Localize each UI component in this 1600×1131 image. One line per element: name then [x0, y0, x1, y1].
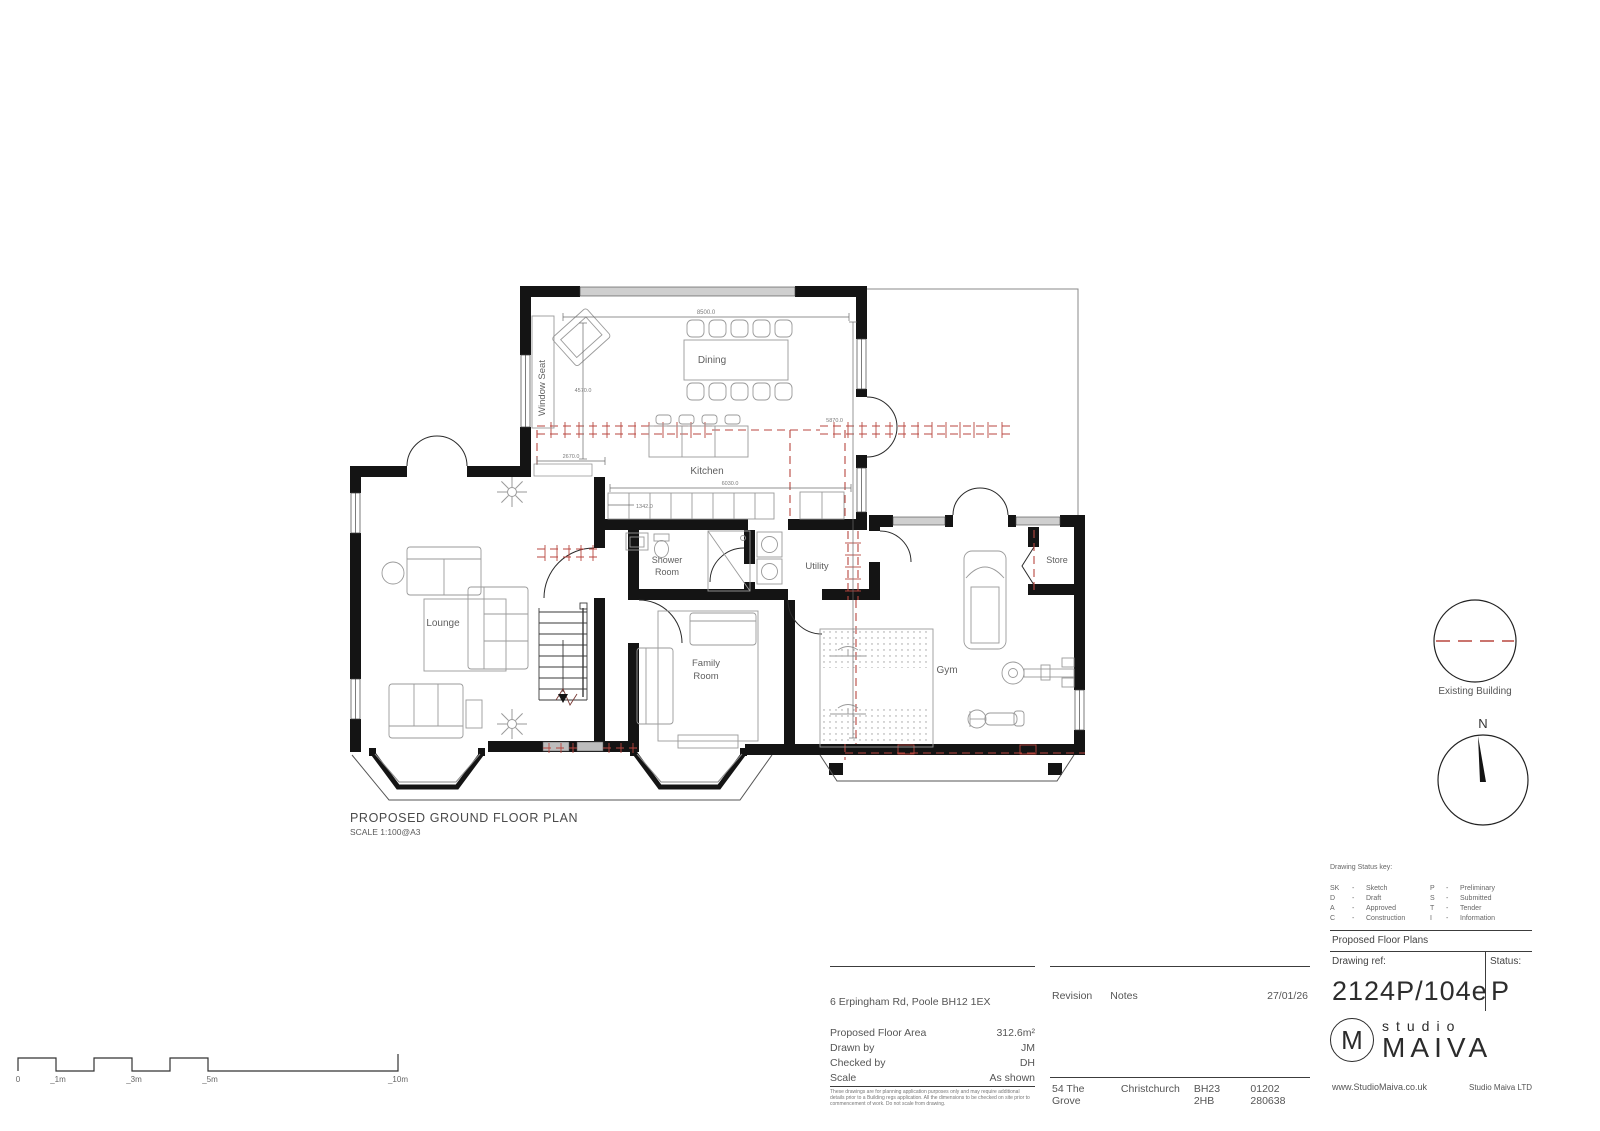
key-dash: - [1446, 884, 1460, 894]
room-label-utility: Utility [805, 561, 828, 572]
plan-scale-note: SCALE 1:100@A3 [350, 827, 578, 837]
scale-bar: 0 _1m _3m _5m _10m [16, 1054, 409, 1084]
key-dash: - [1446, 904, 1460, 914]
info-row-floor-area: Proposed Floor Area 312.6m² [830, 1026, 1035, 1041]
key-code: A [1330, 904, 1352, 914]
room-label-lounge: Lounge [426, 618, 460, 629]
disclaimer-text: These drawings are for planning applicat… [830, 1089, 1035, 1107]
plan-title: PROPOSED GROUND FLOOR PLAN [350, 811, 578, 825]
key-dash: - [1352, 914, 1366, 924]
existing-building-legend: Existing Building [1434, 600, 1516, 697]
key-label: Sketch [1366, 884, 1430, 894]
key-code: C [1330, 914, 1352, 924]
dim-right-height: 5870.0 [826, 418, 843, 424]
info-row-checked-by: Checked by DH [830, 1056, 1035, 1071]
practice-street: 54 The Grove [1052, 1083, 1107, 1107]
key-dash: - [1352, 894, 1366, 904]
key-code: T [1430, 904, 1446, 914]
scale-bar-label-0: 0 [16, 1075, 21, 1084]
room-label-family-line1: Family [692, 658, 720, 669]
revision-date: 27/01/26 [1267, 990, 1308, 1002]
info-row-drawn-by: Drawn by JM [830, 1041, 1035, 1056]
info-label: Scale [830, 1071, 856, 1086]
key-dash: - [1446, 914, 1460, 924]
demolition-red-dashes [537, 422, 1085, 760]
info-value: As shown [989, 1071, 1035, 1086]
key-dash: - [1352, 904, 1366, 914]
status-key-table: SK-Sketch P-Preliminary D-Draft S-Submit… [1330, 884, 1530, 924]
key-dash: - [1352, 884, 1366, 894]
key-label: Tender [1460, 904, 1530, 914]
info-label: Proposed Floor Area [830, 1026, 926, 1041]
key-label: Approved [1366, 904, 1430, 914]
info-value: JM [1021, 1041, 1035, 1056]
existing-building-outline [867, 289, 1078, 515]
scale-bar-label-10m: _10m [387, 1075, 408, 1084]
info-value: DH [1020, 1056, 1035, 1071]
room-label-shower-line2: Room [655, 567, 679, 577]
status-value: P [1491, 976, 1510, 1007]
room-label-family-line2: Room [693, 671, 718, 682]
brand-monogram-icon: M [1330, 1018, 1374, 1062]
dim-hall-width: 2670.0 [563, 454, 580, 460]
site-address: 6 Erpingham Rd, Poole BH12 1EX [830, 996, 991, 1008]
plan-caption: PROPOSED GROUND FLOOR PLAN SCALE 1:100@A… [350, 811, 578, 837]
practice-town: Christchurch [1121, 1083, 1180, 1107]
scale-bar-label-3m: _3m [125, 1075, 142, 1084]
key-dash: - [1446, 894, 1460, 904]
sheet-section-title: Proposed Floor Plans [1332, 935, 1428, 946]
status-key-title: Drawing Status key: [1330, 864, 1392, 871]
info-label: Checked by [830, 1056, 885, 1071]
dim-dining-width: 8500.0 [697, 310, 716, 316]
key-label: Construction [1366, 914, 1430, 924]
revision-column-header: Revision [1052, 990, 1092, 1002]
brand-name-text: MAIVA [1382, 1032, 1492, 1064]
drawing-ref-value: 2124P/104e [1332, 976, 1488, 1007]
room-label-store: Store [1046, 555, 1068, 565]
key-code: P [1430, 884, 1446, 894]
key-label: Preliminary [1460, 884, 1530, 894]
info-label: Drawn by [830, 1041, 874, 1056]
key-code: D [1330, 894, 1352, 904]
key-code: I [1430, 914, 1446, 924]
brand-company: Studio Maiva LTD [1469, 1083, 1532, 1092]
dim-dining-height: 4570.0 [575, 388, 592, 394]
room-label-dining: Dining [698, 355, 726, 366]
dim-kitchen-width: 6030.0 [722, 481, 739, 487]
scale-bar-label-5m: _5m [201, 1075, 218, 1084]
north-arrow-icon: N [1438, 716, 1528, 825]
key-label: Submitted [1460, 894, 1530, 904]
studio-maiva-logo: M studio MAIVA [1330, 1016, 1532, 1066]
room-label-kitchen: Kitchen [690, 466, 723, 477]
scale-bar-label-1m: _1m [49, 1075, 66, 1084]
dim-kitchen-depth: 1342.0 [636, 504, 653, 510]
info-row-scale: Scale As shown [830, 1071, 1035, 1087]
key-code: SK [1330, 884, 1352, 894]
key-label: Information [1460, 914, 1530, 924]
title-block: Drawing Status key: SK-Sketch P-Prelimin… [1330, 864, 1532, 1104]
drawing-ref-label: Drawing ref: [1332, 956, 1386, 967]
existing-building-label: Existing Building [1438, 686, 1511, 697]
info-value: 312.6m² [996, 1026, 1035, 1041]
north-label: N [1478, 716, 1487, 731]
room-label-window-seat: Window Seat [537, 360, 548, 416]
practice-postcode: BH23 2HB [1194, 1083, 1237, 1107]
key-code: S [1430, 894, 1446, 904]
brand-website[interactable]: www.StudioMaiva.co.uk [1332, 1082, 1427, 1092]
notes-column-header: Notes [1110, 990, 1137, 1002]
practice-phone: 01202 280638 [1250, 1083, 1308, 1107]
key-label: Draft [1366, 894, 1430, 904]
status-label: Status: [1490, 956, 1521, 967]
room-label-shower-line1: Shower [652, 555, 683, 565]
room-label-gym: Gym [936, 665, 957, 676]
revision-block: Revision Notes 27/01/26 54 The Grove Chr… [1050, 966, 1310, 1096]
drawing-sheet: 8500.0 4570.0 5870.0 2670.0 6030.0 1342.… [0, 0, 1600, 1131]
stairs [539, 603, 587, 705]
